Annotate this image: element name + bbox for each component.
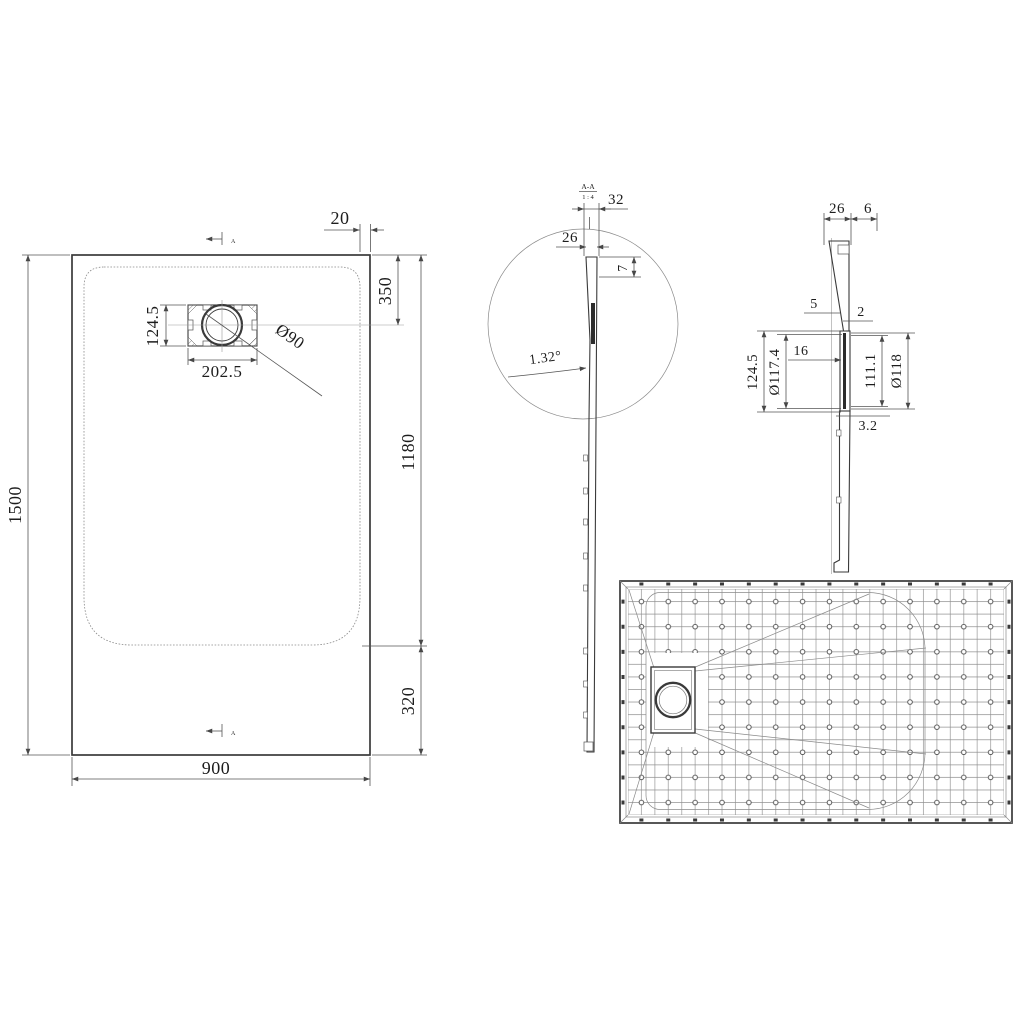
technical-drawing: A A 1500 900 20 bbox=[0, 0, 1024, 1024]
svg-text:7: 7 bbox=[615, 264, 630, 271]
drain-detail-view: 26 6 5 2 124.5 Ø117.4 bbox=[745, 201, 915, 574]
svg-text:1500: 1500 bbox=[5, 486, 25, 524]
section-letter-bottom: A bbox=[231, 731, 236, 737]
tray-outline bbox=[72, 255, 370, 755]
drawing-canvas: A A 1500 900 20 bbox=[0, 0, 1024, 1024]
svg-text:350: 350 bbox=[375, 277, 395, 306]
bottom-drain-hole bbox=[656, 683, 690, 717]
svg-text:124.5: 124.5 bbox=[745, 354, 761, 390]
svg-text:20: 20 bbox=[331, 208, 350, 228]
detail-circle bbox=[488, 229, 678, 419]
dim-recess-depth: 16 bbox=[788, 344, 841, 360]
dim-outer-dia: Ø118 bbox=[851, 333, 915, 409]
dim-floor-length: 1180 bbox=[362, 255, 427, 646]
section-label: A-A 1 : 4 bbox=[579, 182, 597, 201]
dim-wall-top: 5 bbox=[804, 297, 840, 313]
section-marker-bottom: A bbox=[206, 724, 236, 737]
dim-lip-width: 26 bbox=[556, 230, 609, 247]
svg-text:320: 320 bbox=[398, 687, 418, 716]
detail-lower-strip bbox=[834, 411, 850, 572]
svg-text:1.32°: 1.32° bbox=[528, 349, 562, 368]
svg-text:A-A: A-A bbox=[581, 182, 595, 191]
bottom-view bbox=[620, 581, 1012, 823]
svg-text:3.2: 3.2 bbox=[859, 419, 878, 434]
dim-lip-depth: 7 bbox=[599, 257, 641, 277]
dim-drain-box-width: 202.5 bbox=[188, 348, 257, 381]
svg-text:26: 26 bbox=[829, 201, 845, 217]
svg-text:16: 16 bbox=[794, 344, 809, 359]
section-marker-top: A bbox=[206, 232, 236, 245]
dim-overall-length: 1500 bbox=[5, 255, 70, 755]
svg-text:202.5: 202.5 bbox=[202, 362, 243, 381]
svg-text:32: 32 bbox=[608, 192, 624, 208]
dim-drain-box-height: 124.5 bbox=[143, 305, 186, 346]
section-letter-top: A bbox=[231, 239, 236, 245]
plan-view: A A 1500 900 20 bbox=[5, 208, 427, 786]
dim-flange-lip: 6 bbox=[851, 201, 877, 219]
wedge-notch bbox=[838, 245, 849, 254]
dim-bottom-band: 320 bbox=[372, 646, 427, 755]
dim-rim-gap: 20 bbox=[324, 208, 384, 252]
svg-text:2: 2 bbox=[857, 305, 865, 320]
section-profile bbox=[584, 217, 598, 752]
bottom-drain bbox=[651, 667, 695, 733]
svg-text:124.5: 124.5 bbox=[143, 306, 162, 347]
svg-text:900: 900 bbox=[202, 758, 231, 778]
profile-foot bbox=[584, 742, 593, 751]
detail-pocket bbox=[840, 331, 850, 411]
dim-slope-angle: 1.32° bbox=[508, 349, 586, 377]
dim-drain-offset: 350 bbox=[372, 255, 427, 325]
dim-overall-width: 900 bbox=[72, 757, 370, 786]
dim-drain-hole-dia: Ø90 bbox=[206, 314, 322, 396]
dim-rim-width: 32 bbox=[572, 192, 628, 256]
detail-wedge bbox=[829, 241, 849, 331]
svg-text:26: 26 bbox=[562, 230, 578, 246]
svg-text:111.1: 111.1 bbox=[863, 353, 879, 388]
dim-recess-height: 111.1 bbox=[851, 336, 888, 407]
svg-text:Ø118: Ø118 bbox=[889, 354, 905, 389]
svg-text:5: 5 bbox=[810, 297, 818, 312]
svg-text:6: 6 bbox=[864, 201, 872, 217]
svg-text:Ø117.4: Ø117.4 bbox=[767, 348, 783, 395]
dim-base-wall: 3.2 bbox=[836, 416, 890, 434]
drain-recess-edge bbox=[591, 303, 595, 344]
svg-text:1 : 4: 1 : 4 bbox=[582, 194, 594, 201]
dim-wall-bottom: 2 bbox=[843, 305, 873, 321]
svg-text:1180: 1180 bbox=[398, 433, 418, 470]
